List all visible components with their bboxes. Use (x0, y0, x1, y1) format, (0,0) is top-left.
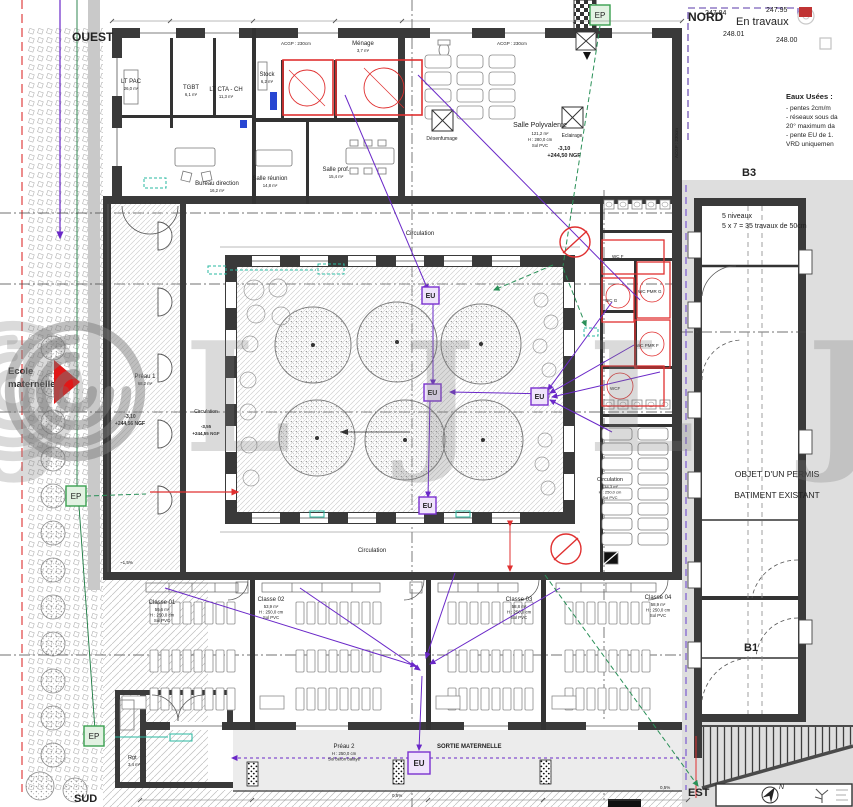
vent-arrow (583, 52, 591, 60)
level-circ-ngf: +244,55 NGF (192, 431, 219, 436)
room-preau1: Préau 1 (134, 374, 156, 380)
room-classe01-floor: Sol PVC (154, 618, 170, 623)
room-menage: Ménage (352, 41, 374, 47)
slope-west: ~1,5% (120, 560, 133, 565)
label-b1: B1 (744, 642, 758, 654)
room-wcf: WCF (610, 386, 620, 391)
note-eaux-2: - réseaux sous da (786, 114, 838, 121)
post (247, 762, 258, 786)
note-permis-2: BATIMENT EXISTANT (734, 490, 819, 500)
label-desenfumage: Désenfumage (426, 136, 457, 142)
eu-label: EU (426, 293, 436, 300)
room-classe03: Classe 03 (506, 597, 533, 603)
room-classe04: Classe 04 (645, 595, 672, 601)
label-sortie-maternelle: SORTIE MATERNELLE (437, 744, 502, 750)
room-classe01-height: H : 250,0 cm (150, 613, 175, 618)
sanitary-fixtures-bottom (604, 400, 670, 409)
preau1-strip (111, 204, 180, 570)
ep-label: EP (71, 492, 82, 501)
label-eclairage: Eclairage (562, 133, 583, 139)
label-circulation-bottom: Circulation (358, 548, 386, 554)
room-classe04-height: H : 250,0 cm (646, 608, 671, 613)
floor-plan-sheet: EU EU EU EU EU EP EP EP OUEST NORD SUD E… (0, 0, 853, 807)
roof-hatch-desenfumage (432, 110, 453, 131)
label-circulation-east: Circulation (597, 477, 623, 483)
room-wc-pmr-f: WC PMR F (636, 343, 659, 348)
level-travaux-1: 247.84 (705, 10, 727, 17)
site-symbol-square (820, 38, 831, 49)
room-preau2-height: H : 250,0 cm (332, 751, 357, 756)
room-poly-height: H : 280,0 cm (528, 137, 553, 142)
room-classe01: Classe 01 (149, 600, 176, 606)
room-classe04-area: 58,9 m² (651, 602, 666, 607)
room-lt-pac-area: 26,0 m² (124, 86, 139, 91)
classroom-04-desks (552, 602, 650, 710)
label-en-travaux: En travaux (736, 16, 789, 28)
circ-height: H : 250,0 cm (599, 490, 622, 495)
room-stock: Stock (259, 72, 275, 78)
post (393, 760, 404, 784)
room-classe01-area: 59,6 m² (155, 607, 170, 612)
label-est: EST (688, 787, 710, 799)
room-bureau-area: 16,2 m² (210, 188, 225, 193)
room-wc-pmr-g: WC PMR G (638, 289, 662, 294)
level-salle-niv: -3,10 (558, 146, 571, 152)
room-poly: Salle Polyvalente (513, 122, 567, 129)
room-prof-area: 15,4 m² (329, 174, 344, 179)
level-travaux-2: 247.95 (766, 7, 788, 14)
legend-box: N (716, 784, 852, 806)
salle-polyvalente (425, 0, 596, 131)
label-ecole-1: Ecole (8, 366, 33, 377)
room-preau2: Préau 2 (333, 744, 355, 750)
room-classe03-floor: Sol PVC (511, 615, 527, 620)
eu-label: EU (423, 503, 433, 510)
circ-area: 144,3 m² (602, 484, 618, 489)
label-ouest: OUEST (72, 30, 114, 44)
acgp-left: ACGP : 230cm (281, 41, 311, 46)
eu-label: EU (413, 759, 424, 768)
poly-tables (425, 55, 515, 119)
note-eaux-3: 20° maximum da (786, 122, 835, 130)
acgp-right: ACGP : 230cm (674, 128, 679, 158)
room-classe03-height: H : 250,0 cm (507, 610, 532, 615)
room-menage-area: 3,7 m² (357, 48, 370, 53)
ep-label: EP (89, 732, 100, 741)
preau1-floor (111, 204, 180, 570)
room-bureau: Bureau direction (195, 181, 239, 187)
room-tgbt-area: 6,1 m² (185, 92, 198, 97)
room-reunion: Salle réunion (252, 176, 287, 182)
red-corner-mark (799, 7, 812, 17)
label-sud: SUD (74, 793, 97, 805)
note-eaux-5: VRD uniquemen (786, 141, 834, 148)
label-circulation-top: Circulation (406, 231, 434, 237)
slope-south-1: 0,5% (392, 793, 402, 798)
level-travaux-3: 248.01 (723, 31, 745, 38)
room-lt-cta: LT CTA - CH (209, 87, 242, 93)
room-prof: Salle prof. (322, 167, 349, 173)
level-preau-ngf: +244,56 NGF (115, 421, 145, 427)
room-classe04-floor: Sol PVC (650, 613, 666, 618)
room-classe02: Classe 02 (258, 597, 285, 603)
room-rgt-area: 3,4 m² (128, 762, 141, 767)
room-rgt: Rgt (128, 755, 137, 761)
level-preau-niv: -3,10 (124, 414, 136, 420)
level-circ-niv: -3,55 (201, 424, 212, 429)
note-eaux-1: - pentes 2cm/m (786, 105, 831, 112)
blue-fixtures (240, 92, 277, 128)
ep-label: EP (595, 11, 606, 20)
post (540, 760, 551, 784)
note-eaux-title: Eaux Usées : (786, 92, 833, 101)
label-b3: B3 (742, 167, 756, 179)
note-niveaux-1: 5 niveaux (722, 213, 752, 220)
acgp-top: ACGP : 230cm (497, 41, 527, 46)
room-poly-floor: Sol PVC (532, 143, 548, 148)
label-ecole-2: maternelle (8, 379, 56, 390)
room-lt-cta-area: 11,3 m² (219, 94, 234, 99)
room-wc-g: WC G (605, 298, 618, 303)
room-lt-pac: LT PAC (121, 79, 142, 85)
room-tgbt: TGBT (183, 85, 199, 91)
slope-south-2: 0,5% (660, 785, 670, 790)
note-permis-1: OBJET D'UN PERMIS (735, 469, 820, 479)
note-niveaux-2: 5 x 7 = 35 travaux de 50cm (722, 223, 807, 230)
note-eaux-4: - pente EU de 1. (786, 132, 834, 139)
sanitary-fixtures-top (604, 200, 670, 209)
circ-floor: Sol PVC (602, 495, 617, 500)
room-classe02-height: H : 250,0 cm (259, 610, 284, 615)
level-travaux-4: 248.00 (776, 37, 798, 44)
floor-plan-drawing: EU EU EU EU EU EP EP EP OUEST NORD SUD E… (0, 0, 853, 807)
room-poly-area: 121,2 m² (532, 131, 550, 136)
room-preau1-area: 68,2 m² (138, 381, 153, 386)
level-salle-ngf: +244,50 NGF (547, 153, 581, 159)
preau2-floor (233, 730, 688, 790)
room-classe02-area: 53,9 m² (264, 604, 279, 609)
room-reunion-area: 14,8 m² (263, 183, 278, 188)
room-classe03-area: 58,8 m² (512, 604, 527, 609)
eu-label: EU (428, 390, 438, 397)
room-stock-area: 6,2 m² (261, 79, 274, 84)
eu-label: EU (535, 394, 545, 401)
room-preau2-floor: Sol béton balayé (328, 757, 361, 762)
gray-band (88, 0, 100, 590)
vent-symbol (576, 32, 596, 50)
courtyard (237, 267, 563, 512)
room-classe02-floor: Sol PVC (263, 615, 279, 620)
room-wc-f: WC F (612, 254, 624, 259)
label-circulation-west: Circulation (194, 409, 218, 415)
classroom-caseworks (146, 582, 656, 593)
